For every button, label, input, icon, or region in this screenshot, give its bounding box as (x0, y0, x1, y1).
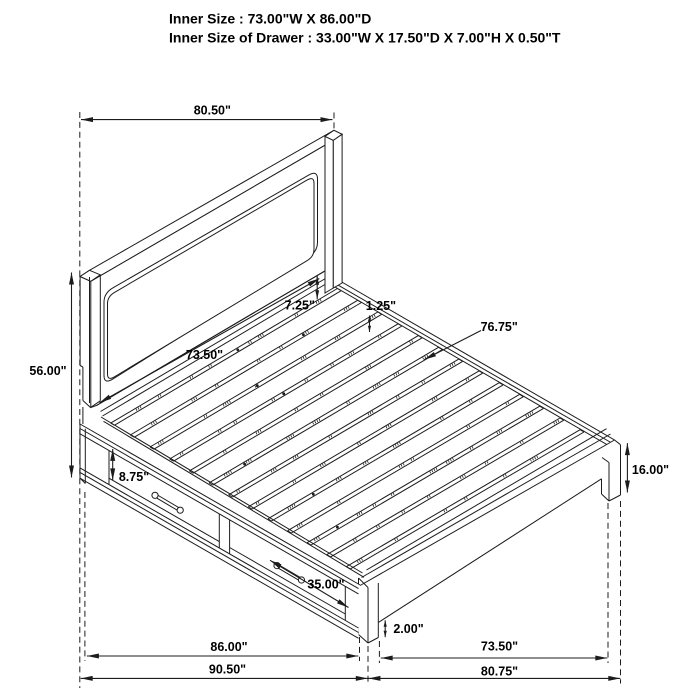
svg-text:2.00": 2.00" (393, 622, 423, 636)
svg-text:Inner Size of Drawer : 33.00"W: Inner Size of Drawer : 33.00"W X 17.50"D… (169, 30, 561, 46)
svg-text:8.75": 8.75" (119, 470, 149, 484)
svg-text:56.00": 56.00" (29, 364, 66, 378)
svg-text:73.50": 73.50" (481, 639, 518, 653)
svg-text:76.75": 76.75" (481, 320, 518, 334)
svg-text:90.50": 90.50" (209, 662, 246, 676)
svg-text:35.00": 35.00" (307, 578, 344, 592)
svg-text:7.25": 7.25" (285, 298, 315, 312)
svg-text:16.00": 16.00" (632, 463, 669, 477)
svg-text:73.50": 73.50" (186, 348, 223, 362)
svg-text:1.25": 1.25" (366, 299, 396, 313)
svg-text:86.00": 86.00" (210, 640, 247, 654)
svg-text:80.50": 80.50" (194, 104, 231, 118)
svg-text:Inner Size : 73.00"W X 86.00"D: Inner Size : 73.00"W X 86.00"D (169, 11, 371, 27)
svg-text:80.75": 80.75" (481, 664, 518, 678)
